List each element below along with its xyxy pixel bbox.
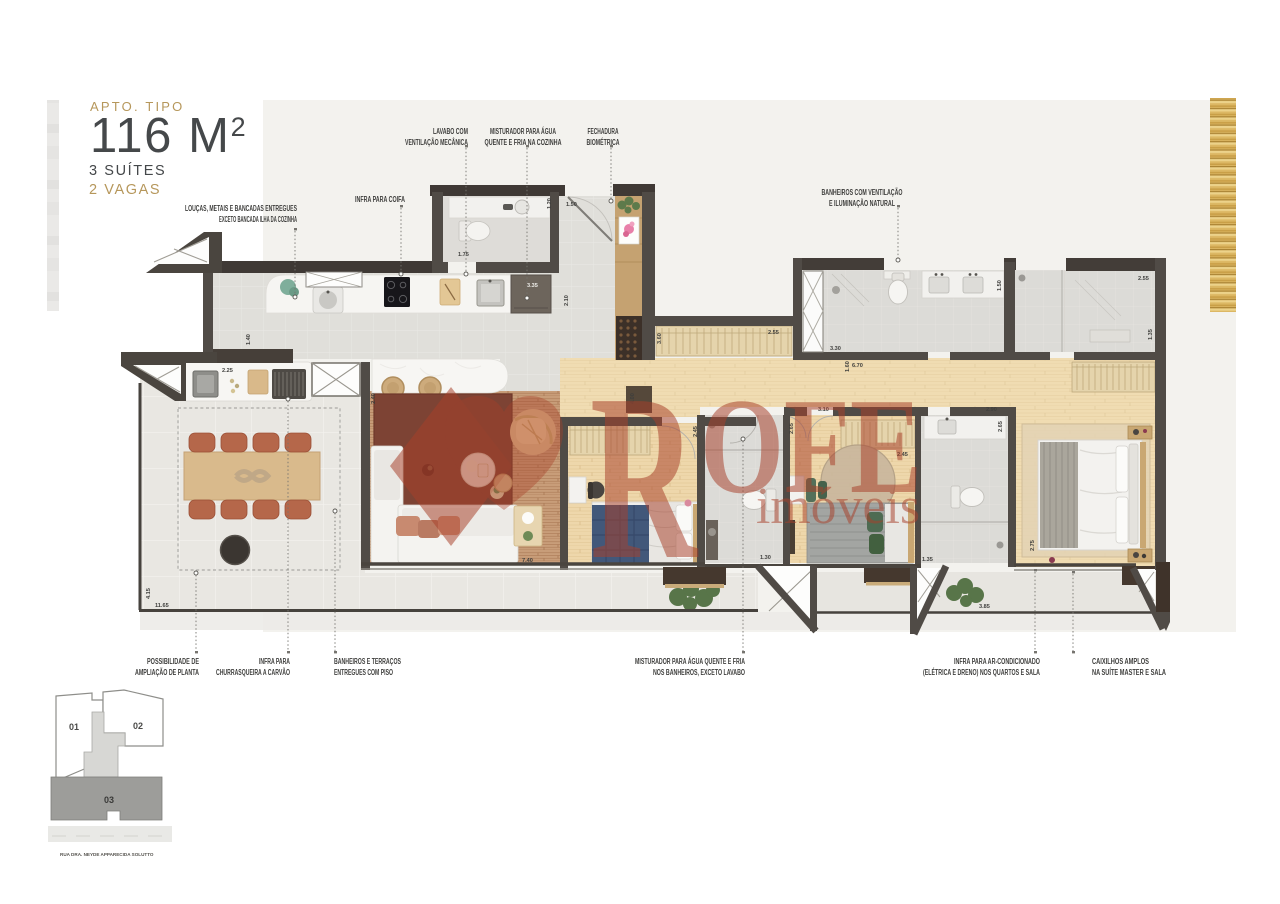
svg-text:LAVABO COM: LAVABO COM <box>433 126 468 136</box>
svg-text:INFRA PARA AR-CONDICIONADO: INFRA PARA AR-CONDICIONADO <box>954 656 1040 666</box>
svg-text:01: 01 <box>69 722 79 732</box>
svg-text:BANHEIROS E TERRAÇOS: BANHEIROS E TERRAÇOS <box>334 656 401 666</box>
svg-text:CAIXILHOS AMPLOS: CAIXILHOS AMPLOS <box>1092 656 1149 666</box>
svg-text:02: 02 <box>133 721 143 731</box>
svg-text:7.40: 7.40 <box>522 558 533 564</box>
svg-text:MISTURADOR PARA ÁGUA: MISTURADOR PARA ÁGUA <box>490 126 556 136</box>
svg-text:2.10: 2.10 <box>564 295 570 306</box>
svg-text:1.75: 1.75 <box>458 252 469 258</box>
svg-text:NOS BANHEIROS, EXCETO LAVABO: NOS BANHEIROS, EXCETO LAVABO <box>653 667 745 677</box>
svg-text:03: 03 <box>104 795 114 805</box>
svg-text:1.50: 1.50 <box>566 202 577 208</box>
svg-text:1.30: 1.30 <box>760 555 771 561</box>
svg-text:R: R <box>590 346 698 609</box>
svg-text:3 SUÍTES: 3 SUÍTES <box>89 162 166 179</box>
svg-text:1.35: 1.35 <box>922 557 933 563</box>
svg-text:INFRA PARA: INFRA PARA <box>259 656 290 666</box>
svg-text:BANHEIROS COM VENTILAÇÃO: BANHEIROS COM VENTILAÇÃO <box>822 187 903 197</box>
svg-text:3.35: 3.35 <box>527 283 538 289</box>
svg-text:3.60: 3.60 <box>657 333 663 344</box>
svg-text:3.30: 3.30 <box>830 346 841 352</box>
svg-text:1.40: 1.40 <box>246 334 252 345</box>
svg-text:E ILUMINAÇÃO NATURAL: E ILUMINAÇÃO NATURAL <box>829 198 895 208</box>
svg-text:2.75: 2.75 <box>1030 540 1036 551</box>
svg-text:1.35: 1.35 <box>1148 329 1154 340</box>
svg-text:QUENTE E FRIA NA COZINHA: QUENTE E FRIA NA COZINHA <box>485 137 562 147</box>
svg-text:FECHADURA: FECHADURA <box>588 126 619 136</box>
svg-text:116 M2: 116 M2 <box>90 109 247 163</box>
svg-text:EXCETO BANCADA ILHA DA COZINHA: EXCETO BANCADA ILHA DA COZINHA <box>219 214 297 224</box>
svg-text:ENTREGUES COM PISO: ENTREGUES COM PISO <box>334 667 393 677</box>
svg-text:2.25: 2.25 <box>222 368 233 374</box>
svg-text:1.20: 1.20 <box>547 198 553 209</box>
svg-text:2.90: 2.90 <box>986 407 997 413</box>
svg-text:2 VAGAS: 2 VAGAS <box>89 182 161 198</box>
svg-text:CHURRASQUEIRA A CARVÃO: CHURRASQUEIRA A CARVÃO <box>216 667 290 677</box>
svg-text:4.15: 4.15 <box>146 588 152 599</box>
svg-text:3.85: 3.85 <box>979 604 990 610</box>
svg-text:AMPLIAÇÃO DE PLANTA: AMPLIAÇÃO DE PLANTA <box>135 667 199 677</box>
svg-text:imóveis: imóveis <box>756 478 920 535</box>
svg-text:BIOMÉTRICA: BIOMÉTRICA <box>587 137 620 147</box>
svg-text:2.55: 2.55 <box>768 330 779 336</box>
svg-text:11.65: 11.65 <box>155 603 169 609</box>
svg-text:2.55: 2.55 <box>1138 276 1149 282</box>
svg-text:MISTURADOR PARA ÁGUA QUENTE E: MISTURADOR PARA ÁGUA QUENTE E FRIA <box>635 656 745 666</box>
svg-text:VENTILAÇÃO MECÂNICA: VENTILAÇÃO MECÂNICA <box>405 136 468 147</box>
svg-text:INFRA PARA COIFA: INFRA PARA COIFA <box>355 194 405 204</box>
svg-text:LOUÇAS, METAIS E BANCADAS ENTR: LOUÇAS, METAIS E BANCADAS ENTREGUES <box>185 203 297 213</box>
svg-text:2.65: 2.65 <box>998 421 1004 432</box>
svg-text:6.70: 6.70 <box>852 363 863 369</box>
svg-text:1.50: 1.50 <box>997 280 1003 291</box>
svg-text:NA SUÍTE MASTER E SALA: NA SUÍTE MASTER E SALA <box>1092 667 1166 677</box>
svg-text:RUA DRA. NEYDE APPARECIDA SOLU: RUA DRA. NEYDE APPARECIDA SOLUTTO <box>60 852 154 857</box>
svg-text:POSSIBILIDADE DE: POSSIBILIDADE DE <box>147 656 199 666</box>
svg-text:(ELÉTRICA E DRENO) NOS QUARTOS: (ELÉTRICA E DRENO) NOS QUARTOS E SALA <box>923 667 1040 677</box>
svg-text:2.40: 2.40 <box>371 393 377 404</box>
